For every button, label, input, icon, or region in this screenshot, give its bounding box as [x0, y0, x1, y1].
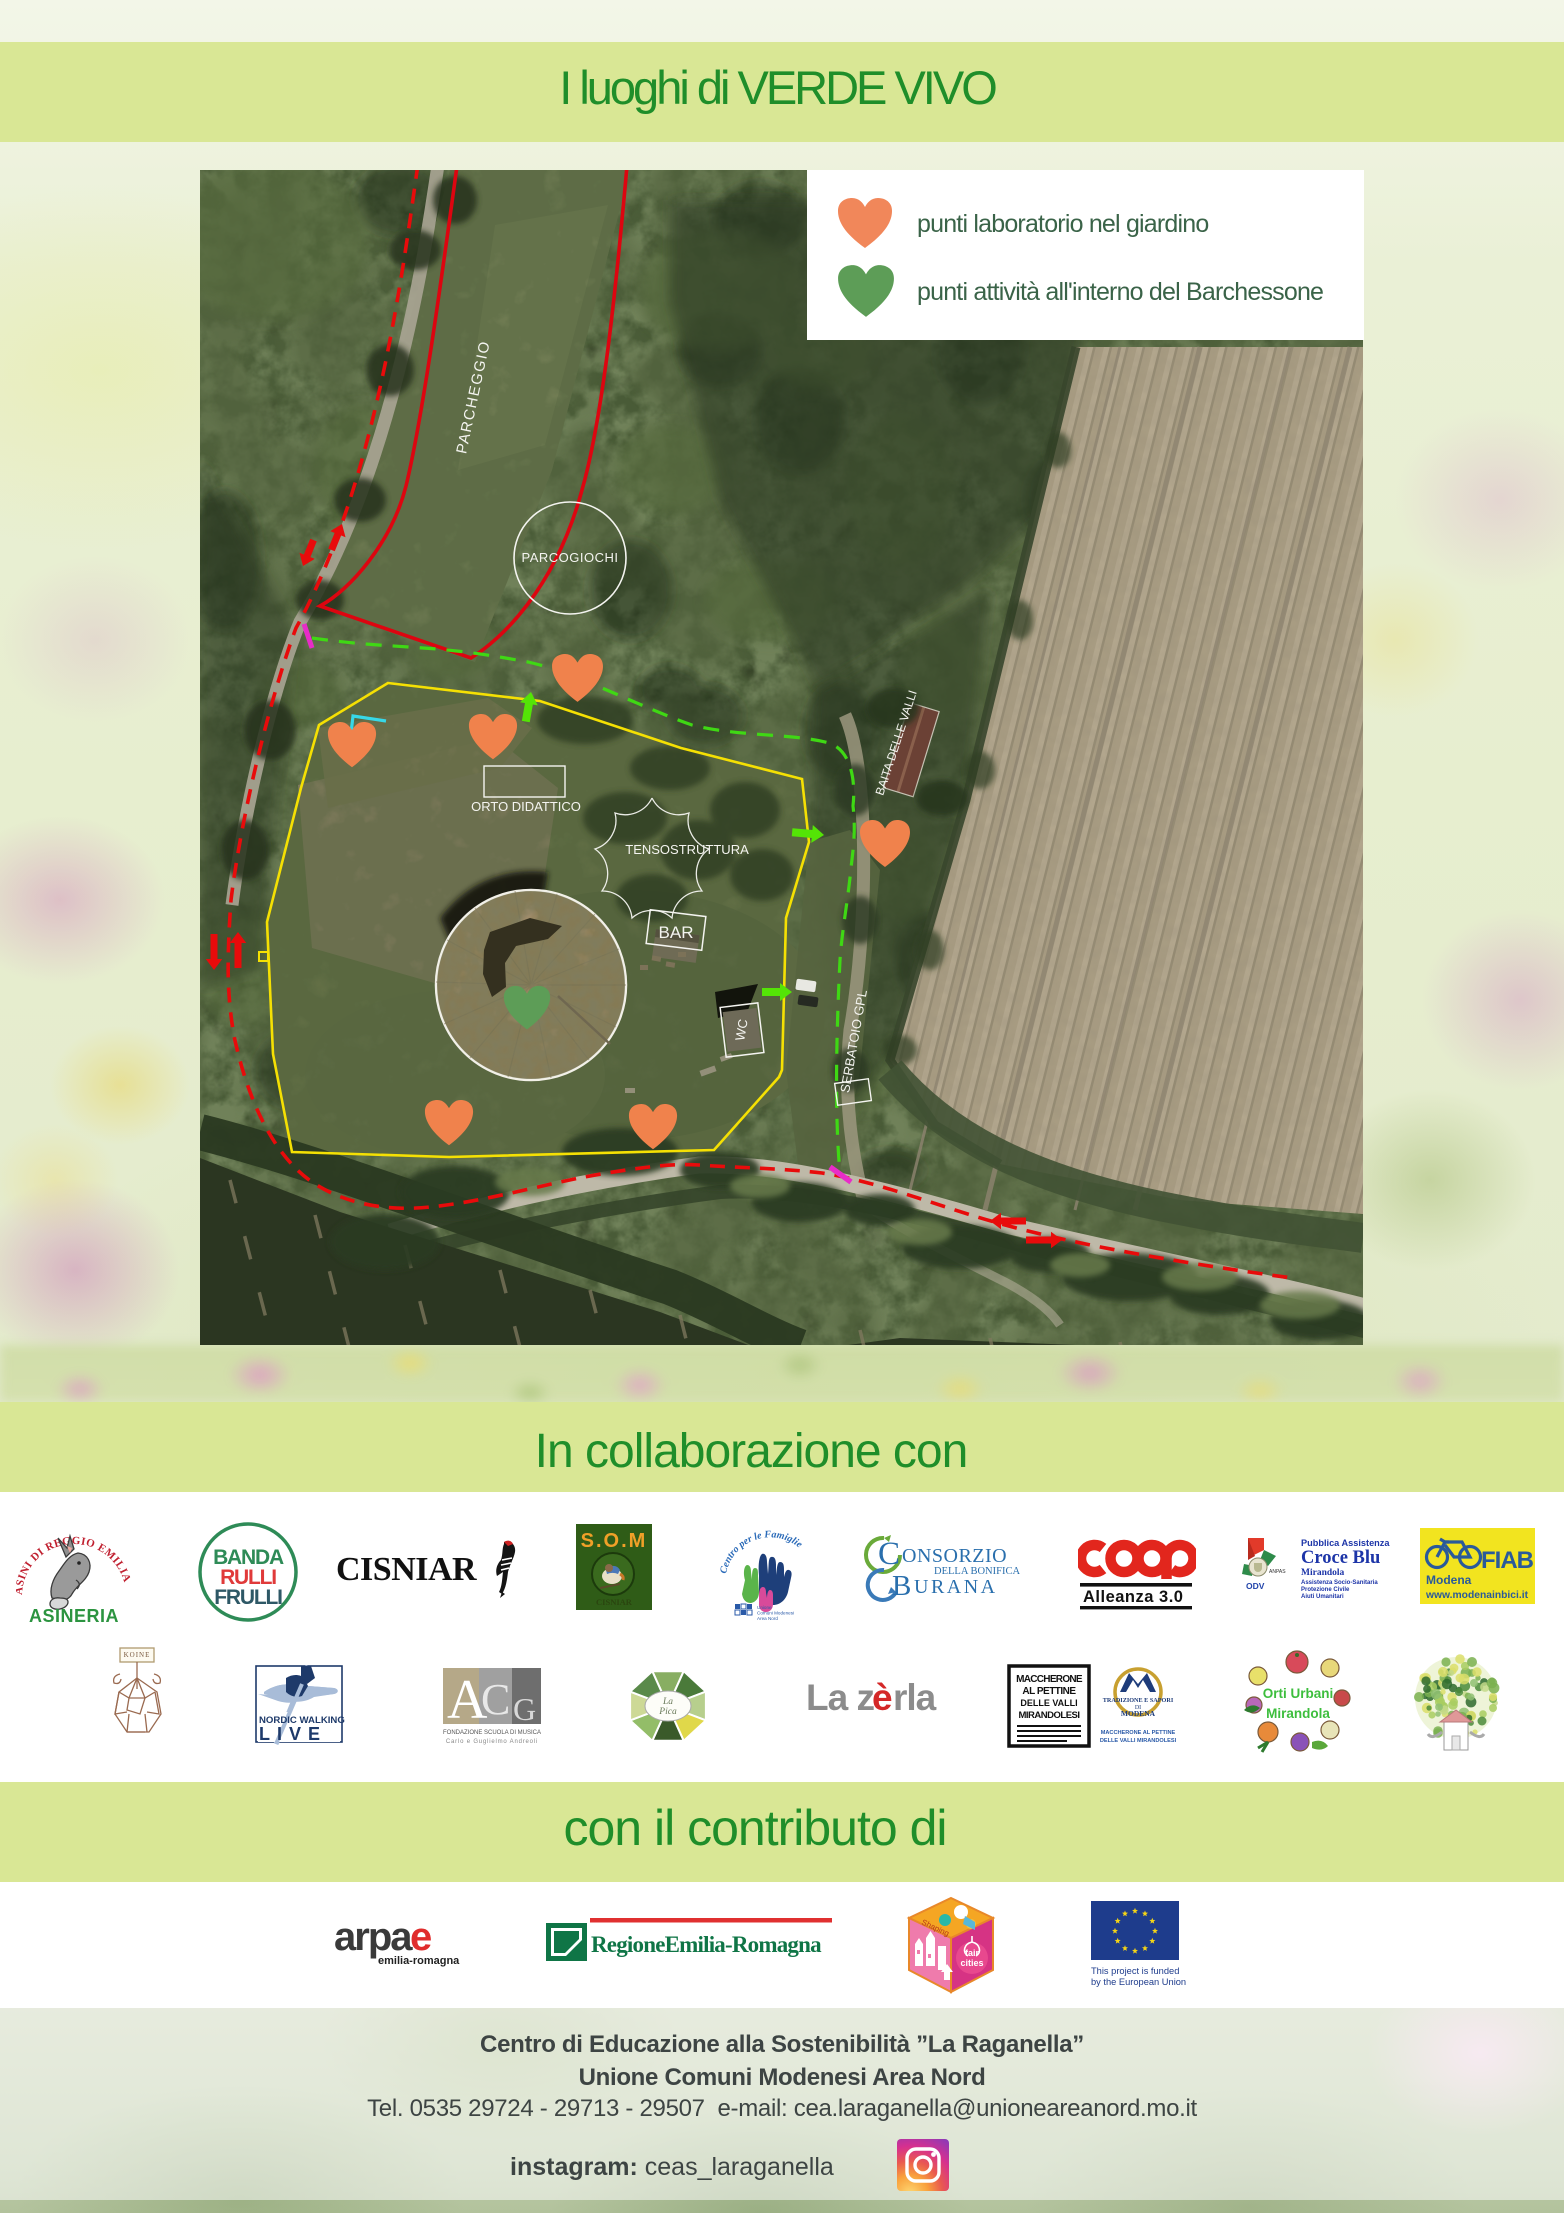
svg-text:G: G: [513, 1691, 536, 1727]
svg-text:PARCOGIOCHI: PARCOGIOCHI: [522, 550, 619, 565]
svg-text:arpa: arpa: [334, 1915, 413, 1959]
svg-text:TRADIZIONE E SAPORI: TRADIZIONE E SAPORI: [1103, 1697, 1174, 1704]
svg-text:ONSORZIO: ONSORZIO: [902, 1545, 1007, 1567]
svg-text:ANPAS: ANPAS: [1269, 1569, 1286, 1575]
svg-text:RegioneEmilia-Romagna: RegioneEmilia-Romagna: [591, 1932, 822, 1957]
svg-text:URANA: URANA: [914, 1576, 998, 1598]
svg-text:Assistenza Socio-Sanitaria: Assistenza Socio-Sanitaria: [1301, 1580, 1378, 1586]
svg-text:La z: La z: [806, 1677, 874, 1718]
svg-text:AL PETTINE: AL PETTINE: [1022, 1686, 1076, 1697]
svg-text:La: La: [662, 1697, 673, 1707]
svg-text:Comuni Modenesi: Comuni Modenesi: [757, 1611, 794, 1616]
svg-text:CISNIAR: CISNIAR: [596, 1597, 633, 1607]
svg-text:C: C: [878, 1536, 900, 1572]
svg-text:MACCHERONE: MACCHERONE: [1016, 1674, 1083, 1685]
svg-text:Carlo e Guglielmo Andreoli: Carlo e Guglielmo Andreoli: [446, 1739, 538, 1745]
svg-text:BAR: BAR: [659, 923, 694, 942]
svg-text:Pica: Pica: [658, 1707, 677, 1717]
svg-text:emilia-romagna: emilia-romagna: [378, 1955, 460, 1967]
svg-text:Mirandola: Mirandola: [1266, 1706, 1330, 1721]
svg-text:Pubblica Assistenza: Pubblica Assistenza: [1301, 1538, 1390, 1548]
svg-text:Mirandola: Mirandola: [1301, 1568, 1345, 1578]
svg-text:www.modenainbici.it: www.modenainbici.it: [1425, 1590, 1529, 1601]
svg-text:Protezione Civile: Protezione Civile: [1301, 1587, 1350, 1593]
svg-text:Alleanza 3.0: Alleanza 3.0: [1083, 1588, 1183, 1606]
svg-text:DELLE VALLI MIRANDOLESI: DELLE VALLI MIRANDOLESI: [1100, 1738, 1177, 1744]
svg-text:B: B: [892, 1570, 911, 1602]
svg-text:FONDAZIONE SCUOLA DI MUSICA: FONDAZIONE SCUOLA DI MUSICA: [443, 1730, 541, 1736]
svg-text:C: C: [481, 1675, 510, 1724]
svg-text:fair: fair: [965, 1948, 980, 1958]
svg-text:FRULLI: FRULLI: [214, 1586, 282, 1609]
svg-text:LIVE: LIVE: [259, 1724, 327, 1744]
svg-text:MIRANDOLESI: MIRANDOLESI: [1019, 1710, 1080, 1721]
svg-text:rla: rla: [893, 1677, 937, 1718]
svg-text:KOINE: KOINE: [124, 1651, 151, 1659]
svg-text:FIAB: FIAB: [1481, 1547, 1534, 1574]
svg-text:ORTO DIDATTICO: ORTO DIDATTICO: [471, 799, 581, 814]
svg-text:Unione: Unione: [757, 1605, 772, 1610]
svg-text:cities: cities: [960, 1958, 983, 1968]
svg-text:e: e: [410, 1915, 431, 1959]
svg-text:S.O.M: S.O.M: [581, 1530, 648, 1552]
svg-text:TENSOSTRUTTURA: TENSOSTRUTTURA: [625, 842, 749, 857]
svg-text:Orti Urbani: Orti Urbani: [1263, 1686, 1334, 1701]
svg-text:Modena: Modena: [1426, 1573, 1472, 1587]
svg-text:ODV: ODV: [1246, 1581, 1265, 1591]
svg-text:MODENA: MODENA: [1121, 1709, 1156, 1718]
svg-text:ASINERIA: ASINERIA: [29, 1606, 119, 1626]
svg-text:Area Nord: Area Nord: [757, 1616, 778, 1621]
svg-text:Croce Blu: Croce Blu: [1301, 1548, 1380, 1568]
svg-text:DELLE VALLI: DELLE VALLI: [1020, 1698, 1077, 1708]
svg-text:MACCHERONE AL PETTINE: MACCHERONE AL PETTINE: [1101, 1730, 1176, 1736]
svg-text:CISNIAR: CISNIAR: [336, 1551, 477, 1588]
svg-text:This project is funded: This project is funded: [1091, 1966, 1179, 1976]
svg-text:Aiuti Umanitari: Aiuti Umanitari: [1301, 1594, 1344, 1600]
svg-text:by the European Union: by the European Union: [1091, 1977, 1186, 1987]
